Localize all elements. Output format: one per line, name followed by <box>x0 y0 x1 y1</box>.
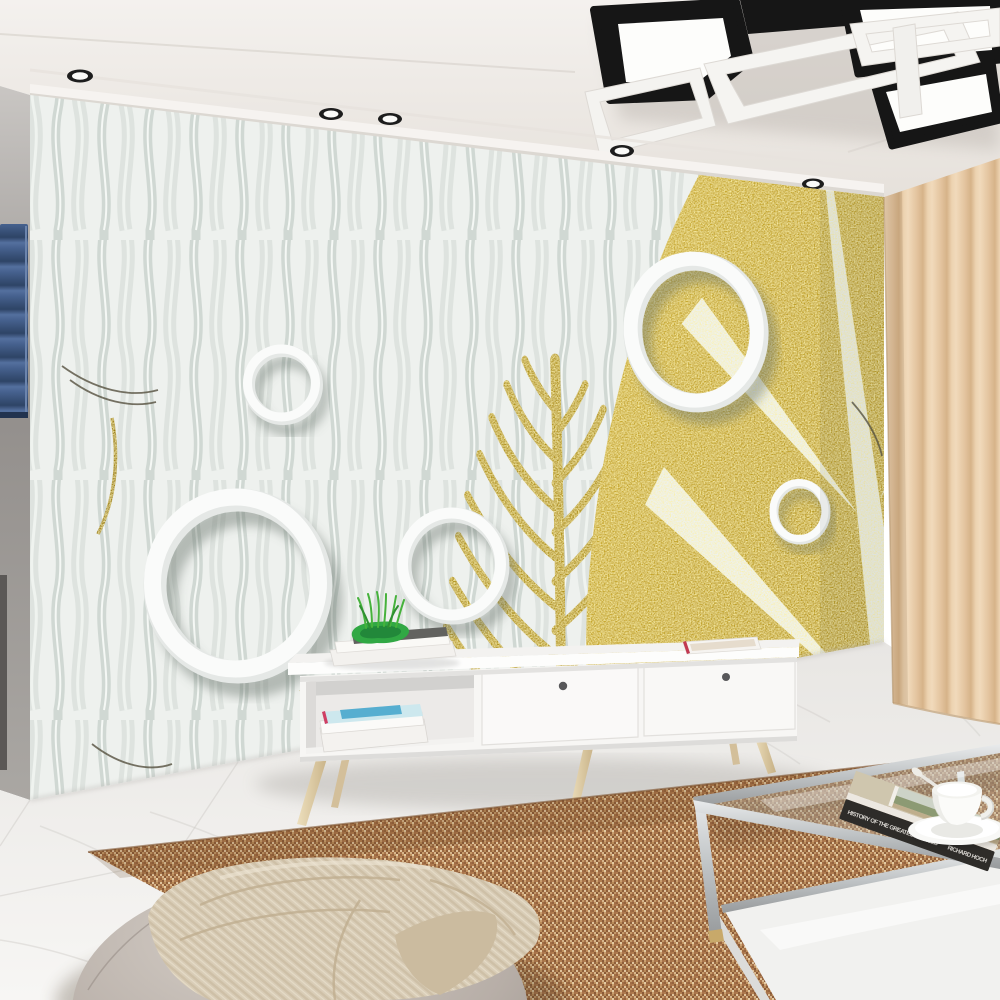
ceiling-light-fixture <box>585 0 1000 156</box>
blind-bottom-bar <box>0 412 28 418</box>
roman-blind <box>0 224 28 418</box>
tv-stand-open-shelf <box>306 675 474 754</box>
curtain <box>884 158 1000 724</box>
left-side-wall <box>0 86 30 800</box>
scene-canvas: HISTORY OF THE GREATEST PLACES RICHARD H… <box>0 0 1000 1000</box>
drawer-front <box>644 658 795 736</box>
drawer-knob <box>722 673 730 681</box>
table-leg-foot <box>708 929 724 943</box>
spotlight-icon <box>67 70 93 83</box>
spotlight-icon <box>378 113 402 125</box>
left-wall-dark-edge <box>0 575 7 770</box>
spotlight-icon <box>319 108 343 120</box>
wall-edge-shade <box>820 190 884 655</box>
drawer-front <box>482 664 638 745</box>
spotlight-icon <box>610 145 634 157</box>
living-room-scene: HISTORY OF THE GREATEST PLACES RICHARD H… <box>0 0 1000 1000</box>
drawer-knob <box>559 682 567 690</box>
cup-interior <box>937 784 977 797</box>
